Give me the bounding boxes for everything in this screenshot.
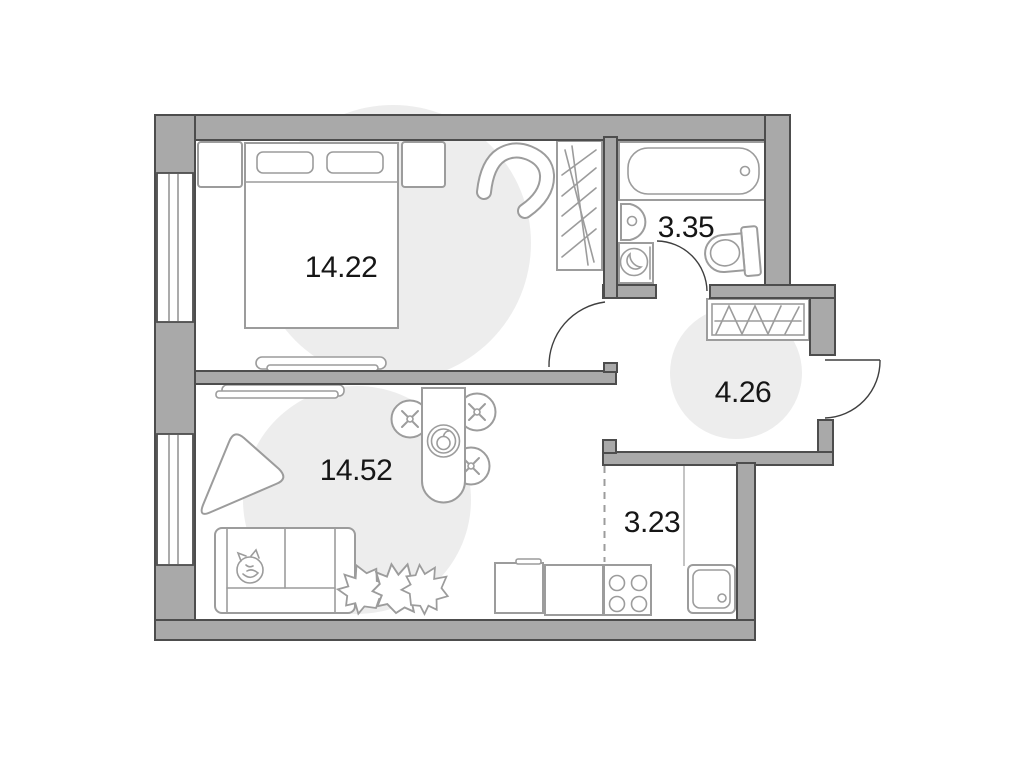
entry-door-icon: [825, 360, 880, 418]
wall-bottom: [155, 620, 755, 640]
wall-hall-south: [603, 452, 833, 465]
living-area-label: 14.52: [320, 454, 393, 487]
bathroom-area-label: 3.35: [658, 211, 714, 244]
pillow-icon: [257, 152, 313, 173]
nightstand-left-icon: [198, 142, 242, 187]
wall-bathroom-east: [765, 115, 790, 298]
floor-plan: 14.22 3.35 4.26 14.52 3.23: [0, 0, 1024, 768]
bedroom-wardrobe-icon: [557, 141, 602, 270]
wall-entry-jamb-lower: [818, 420, 833, 453]
wall-bedroom-south: [195, 371, 616, 384]
dining-table-icon: [422, 388, 465, 503]
bed-icon: [245, 143, 398, 328]
kitchen-area-label: 3.23: [624, 506, 680, 539]
floor-plan-canvas: 14.22 3.35 4.26 14.52 3.23: [0, 0, 1024, 768]
hallway-wardrobe-icon: [707, 299, 809, 340]
pillow-icon: [327, 152, 383, 173]
window-living-icon: [157, 434, 193, 565]
washing-machine-icon: [619, 243, 653, 283]
dishwasher-icon: [495, 559, 543, 613]
wall-bedroom-bathroom: [604, 137, 617, 298]
hallway-area-label: 4.26: [715, 376, 771, 409]
sink-drain-icon: [718, 594, 726, 602]
wall-top: [155, 115, 790, 140]
kitchen-counter-icon: [545, 565, 603, 615]
window-bedroom-icon: [157, 173, 193, 322]
bathtub-icon: [619, 142, 766, 200]
kitchen-sink-icon: [688, 565, 735, 613]
wall-bathroom-south-right: [710, 285, 835, 298]
wall-bedroom-door-jamb: [604, 363, 617, 372]
bathroom-door-arc: [657, 241, 707, 291]
wall-hall-south-stub: [603, 440, 616, 453]
tv-console-icon: [216, 385, 344, 398]
wall-kitchen-east: [737, 463, 755, 640]
bedroom-area-label: 14.22: [305, 251, 378, 284]
bathtub-drain-icon: [741, 167, 750, 176]
sofa-icon: [215, 528, 355, 613]
bathroom-sink-icon: [621, 204, 645, 240]
nightstand-right-icon: [402, 142, 445, 187]
stove-icon: [604, 565, 651, 615]
wall-hall-east-upper: [810, 298, 835, 355]
bedroom-door-arc: [549, 302, 605, 367]
bed-bench-icon: [256, 357, 386, 371]
